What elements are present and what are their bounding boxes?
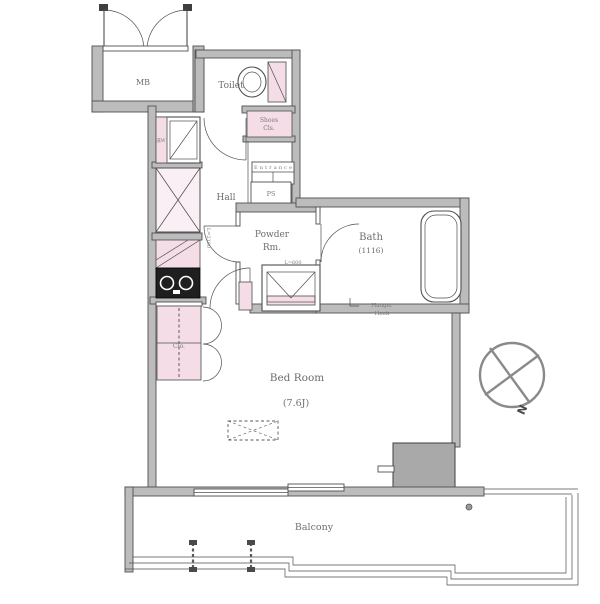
partition-cap1a bbox=[189, 540, 197, 545]
wall-balcony-left bbox=[125, 487, 133, 572]
compass-north-label: N bbox=[515, 403, 531, 417]
door-arc-left bbox=[104, 10, 144, 50]
washer-space: 洗W bbox=[156, 117, 200, 163]
bathtub-outer bbox=[421, 211, 461, 302]
bedroom-label: Bed Room bbox=[270, 372, 325, 384]
mb-label: MB bbox=[136, 78, 150, 87]
bedroom-size-label: (7.6J) bbox=[283, 398, 309, 409]
bed-outline bbox=[228, 421, 278, 440]
wall-powder-left-upper bbox=[236, 212, 240, 226]
bath-size-label: (1116) bbox=[359, 246, 384, 255]
vanity-front-strip bbox=[267, 296, 315, 305]
partition-cap2b bbox=[247, 567, 255, 572]
hanger-hook-label1: Hanger bbox=[371, 303, 392, 309]
entrance-double-door bbox=[99, 4, 192, 51]
shoes-closet-label1: Shoes bbox=[260, 117, 278, 124]
stove bbox=[156, 268, 200, 298]
wall-stub-column bbox=[378, 466, 394, 472]
bathtub bbox=[421, 211, 461, 302]
closet-door-arc1 bbox=[203, 307, 222, 344]
fridge-space bbox=[156, 168, 200, 232]
wall-bath-top bbox=[296, 198, 468, 207]
partition-cap1b bbox=[189, 567, 197, 572]
linen-box bbox=[239, 282, 252, 310]
shoes-closet bbox=[247, 111, 292, 137]
bath-door-arc bbox=[321, 224, 359, 262]
kitchen-counter bbox=[156, 240, 200, 268]
closet-door-arc2 bbox=[203, 344, 222, 381]
drain-dot bbox=[466, 504, 472, 510]
toilet-door-arc bbox=[204, 118, 246, 160]
compass-cross bbox=[485, 355, 539, 395]
toilet-fixture bbox=[238, 62, 286, 102]
washer-label: 洗W bbox=[156, 137, 165, 144]
column-block bbox=[393, 443, 455, 489]
kitchen-length-label: L=2100 bbox=[205, 228, 211, 248]
entrance-label: Entrance bbox=[254, 165, 292, 171]
hall-label: Hall bbox=[217, 193, 236, 203]
balcony-label: Balcony bbox=[295, 522, 334, 533]
compass: N bbox=[480, 343, 544, 417]
toilet-label: Toilet bbox=[218, 81, 244, 91]
wall-stub-kitchen2 bbox=[152, 233, 202, 240]
floor-plan-canvas: Shoes Cls. Entrance PS 洗W L=2100 L=600 bbox=[0, 0, 600, 600]
balcony-railing bbox=[125, 489, 578, 585]
partition-marker2 bbox=[247, 540, 255, 572]
wall-bath-left-upper bbox=[316, 207, 320, 224]
partition-marker1 bbox=[189, 540, 197, 572]
powder-label2: Rm. bbox=[263, 243, 281, 253]
closet: Clo. bbox=[157, 306, 222, 381]
wall-toilet-left bbox=[195, 50, 204, 112]
door-sill bbox=[103, 46, 188, 51]
shoes-closet-label2: Cls. bbox=[263, 125, 275, 132]
wall-bedroom-right bbox=[452, 313, 460, 447]
door-arc-right bbox=[147, 10, 187, 50]
powder-label1: Powder bbox=[255, 230, 290, 240]
wall-toilet-top bbox=[196, 50, 300, 58]
bath-label: Bath bbox=[359, 232, 383, 243]
railing-line2 bbox=[129, 495, 572, 579]
wall-closet-top bbox=[156, 302, 202, 306]
hanger-hook-label2: Hook bbox=[375, 311, 390, 317]
stove-grill bbox=[173, 290, 180, 294]
closet-label: Clo. bbox=[173, 343, 185, 350]
washbasin bbox=[262, 265, 320, 311]
railing-line1 bbox=[133, 497, 566, 573]
pipe-shaft-label: PS bbox=[267, 190, 276, 198]
entrance-step: Entrance bbox=[252, 162, 294, 184]
partition-cap2a bbox=[247, 540, 255, 545]
floor-plan: Shoes Cls. Entrance PS 洗W L=2100 L=600 bbox=[0, 0, 600, 600]
